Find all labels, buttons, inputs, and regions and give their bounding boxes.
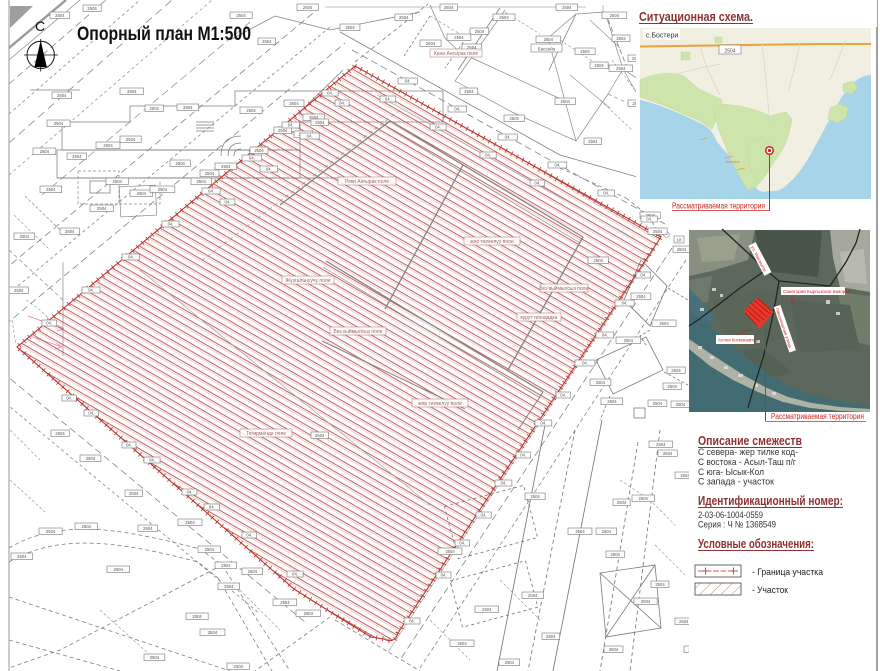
svg-text:2504: 2504 (611, 552, 621, 557)
svg-text:2504: 2504 (72, 154, 82, 159)
svg-text:2504: 2504 (659, 321, 669, 326)
svg-text:2504: 2504 (594, 258, 604, 263)
svg-text:2504: 2504 (57, 93, 67, 98)
svg-text:курут площадка: курут площадка (521, 315, 558, 321)
svg-text:2504: 2504 (236, 13, 246, 18)
svg-text:04.: 04. (534, 180, 540, 185)
svg-text:04.: 04. (409, 618, 415, 623)
svg-text:2504: 2504 (617, 500, 627, 505)
svg-text:Ситуационная схема.: Ситуационная схема. (639, 10, 753, 24)
svg-text:2504: 2504 (315, 120, 325, 125)
svg-text:04.: 04. (66, 395, 72, 400)
svg-text:2504: 2504 (464, 89, 474, 94)
svg-text:2504: 2504 (399, 15, 409, 20)
svg-text:04.: 04. (554, 162, 560, 167)
svg-text:2504: 2504 (14, 288, 24, 293)
svg-text:04.: 04. (126, 442, 132, 447)
svg-text:04.: 04. (168, 221, 174, 226)
svg-text:2504: 2504 (143, 526, 153, 531)
svg-text:2504: 2504 (499, 15, 509, 20)
svg-text:2504: 2504 (87, 6, 97, 11)
svg-text:04.: 04. (327, 90, 333, 95)
svg-text:Аллея Космонавтов: Аллея Космонавтов (718, 338, 758, 343)
svg-text:04.: 04. (435, 124, 441, 129)
svg-text:2504: 2504 (150, 655, 160, 660)
svg-text:04.: 04. (209, 504, 215, 509)
svg-text:04.: 04. (603, 190, 609, 195)
svg-text:2504: 2504 (546, 634, 556, 639)
svg-text:04.: 04. (505, 134, 511, 139)
svg-text:2504: 2504 (656, 442, 666, 447)
svg-text:04.: 04. (501, 480, 507, 485)
svg-text:2504: 2504 (20, 234, 30, 239)
svg-text:2504: 2504 (246, 108, 256, 113)
svg-text:04.: 04. (441, 572, 447, 577)
svg-text:2504: 2504 (205, 547, 215, 552)
svg-text:2504: 2504 (671, 368, 681, 373)
svg-text:2504: 2504 (562, 5, 572, 10)
svg-text:2504: 2504 (97, 206, 107, 211)
svg-text:2504: 2504 (113, 179, 123, 184)
svg-text:2504: 2504 (676, 402, 686, 407)
svg-text:2504: 2504 (575, 529, 585, 534)
svg-text:2504: 2504 (624, 338, 634, 343)
svg-text:Тегирменди поле: Тегирменди поле (246, 431, 286, 437)
svg-text:2504: 2504 (197, 179, 207, 184)
svg-text:2504: 2504 (445, 549, 455, 554)
svg-text:04.: 04. (602, 332, 608, 337)
svg-text:04.: 04. (128, 254, 134, 259)
svg-text:2504: 2504 (304, 611, 314, 616)
svg-text:04.: 04. (46, 320, 52, 325)
svg-text:2504: 2504 (40, 149, 50, 154)
svg-text:04.: 04. (249, 155, 255, 160)
svg-text:2504: 2504 (426, 41, 436, 46)
svg-text:2504: 2504 (444, 5, 454, 10)
svg-text:2504: 2504 (544, 37, 554, 42)
svg-text:Серия : Ч № 1368549: Серия : Ч № 1368549 (698, 520, 776, 531)
svg-text:18: 18 (676, 237, 682, 242)
svg-text:04.: 04. (224, 199, 230, 204)
svg-text:2504: 2504 (46, 529, 56, 534)
svg-text:2504: 2504 (280, 600, 290, 605)
svg-text:Рассматриваемая территория: Рассматриваемая территория (672, 202, 765, 211)
svg-text:2504: 2504 (510, 116, 520, 121)
svg-text:2504: 2504 (655, 582, 665, 587)
svg-text:2504: 2504 (221, 563, 231, 568)
svg-text:04.: 04. (622, 300, 628, 305)
svg-text:2504: 2504 (205, 171, 215, 176)
svg-text:04.: 04. (481, 512, 487, 517)
svg-text:2504: 2504 (345, 25, 355, 30)
svg-text:2504: 2504 (46, 187, 56, 192)
svg-text:04.: 04. (640, 272, 646, 277)
svg-text:2504: 2504 (475, 29, 485, 34)
svg-text:04.: 04. (246, 532, 252, 537)
svg-text:04.: 04. (187, 489, 193, 494)
svg-text:2504: 2504 (528, 593, 538, 598)
svg-text:Бассейн: Бассейн (538, 45, 556, 51)
svg-text:Описание смежеств: Описание смежеств (698, 434, 802, 448)
svg-text:2504: 2504 (65, 229, 75, 234)
svg-text:2504: 2504 (663, 451, 673, 456)
svg-text:2504: 2504 (289, 101, 299, 106)
svg-text:04.: 04. (646, 216, 652, 221)
svg-text:2504: 2504 (158, 187, 168, 192)
svg-text:2504: 2504 (55, 431, 65, 436)
svg-text:2504: 2504 (126, 137, 136, 142)
svg-text:04.: 04. (520, 452, 526, 457)
svg-text:2504: 2504 (530, 494, 540, 499)
svg-text:2504: 2504 (86, 456, 96, 461)
svg-text:Санаторий Кыргызское взморье: Санаторий Кыргызское взморье (783, 288, 851, 294)
svg-text:2504: 2504 (248, 569, 258, 574)
svg-text:Условные обозначения:: Условные обозначения: (698, 537, 814, 551)
svg-text:2504: 2504 (303, 5, 313, 10)
svg-text:2504: 2504 (588, 139, 598, 144)
svg-text:2504: 2504 (679, 619, 689, 624)
svg-text:2504: 2504 (561, 99, 571, 104)
svg-text:Без кыймылсыз поле: Без кыймылсыз поле (333, 328, 382, 335)
svg-text:2504: 2504 (221, 164, 231, 169)
svg-text:2504: 2504 (234, 664, 244, 669)
svg-text:04.: 04. (149, 457, 155, 462)
svg-text:2504: 2504 (610, 13, 620, 18)
svg-text:04.: 04. (266, 166, 272, 171)
svg-text:04.: 04. (385, 96, 391, 101)
svg-text:2504: 2504 (653, 401, 663, 406)
svg-text:04.: 04. (88, 287, 94, 292)
svg-text:2504: 2504 (680, 473, 690, 478)
svg-text:04.: 04. (560, 392, 566, 397)
svg-text:2504: 2504 (185, 520, 195, 525)
svg-text:С: С (35, 18, 45, 34)
svg-text:2504: 2504 (129, 491, 139, 496)
svg-text:04.: 04. (208, 188, 214, 193)
svg-text:04.: 04. (339, 100, 345, 105)
svg-text:- Граница участка: - Граница участка (752, 567, 824, 578)
svg-text:2504: 2504 (454, 35, 464, 40)
svg-text:2504: 2504 (457, 641, 467, 646)
svg-text:без кыймылсыз поле: без кыймылсыз поле (540, 285, 589, 292)
svg-text:2504: 2504 (176, 161, 186, 166)
svg-text:2504: 2504 (616, 66, 626, 71)
svg-text:2504: 2504 (724, 48, 735, 54)
svg-text:2504: 2504 (505, 660, 515, 665)
svg-text:04.: 04. (454, 106, 460, 111)
svg-text:04.: 04. (582, 360, 588, 365)
svg-text:2504: 2504 (137, 191, 147, 196)
svg-text:2504: 2504 (639, 496, 649, 501)
svg-text:2504: 2504 (636, 294, 646, 299)
svg-text:2504: 2504 (641, 599, 651, 604)
svg-text:04.: 04. (88, 410, 94, 415)
svg-text:04.: 04. (459, 540, 465, 545)
svg-text:с.Бостери: с.Бостери (646, 33, 678, 40)
svg-text:2504: 2504 (17, 554, 27, 559)
svg-text:04.: 04. (485, 152, 491, 157)
svg-text:2504: 2504 (224, 584, 234, 589)
svg-text:жер тилкелуу поле: жер тилкелуу поле (418, 401, 462, 407)
svg-text:2504: 2504 (82, 524, 92, 529)
svg-text:2504: 2504 (580, 49, 590, 54)
svg-text:04.: 04. (292, 571, 298, 576)
svg-text:04.: 04. (288, 122, 294, 127)
svg-text:- Участок: - Участок (752, 585, 789, 596)
svg-text:2504: 2504 (262, 39, 272, 44)
svg-text:2504: 2504 (609, 647, 619, 652)
svg-text:2504: 2504 (54, 121, 64, 126)
svg-text:2504: 2504 (183, 105, 193, 110)
svg-text:Реки Ангырак поле: Реки Ангырак поле (345, 179, 389, 185)
svg-text:04.: 04. (540, 420, 546, 425)
svg-text:2504: 2504 (103, 143, 113, 148)
svg-text:2504: 2504 (278, 128, 288, 133)
svg-text:2504: 2504 (594, 63, 604, 68)
svg-text:Жузгалануучу поле: Жузгалануучу поле (286, 278, 331, 284)
svg-text:2504: 2504 (668, 384, 678, 389)
svg-text:жер тилкелуу поле: жер тилкелуу поле (470, 239, 514, 245)
svg-text:04.: 04. (405, 78, 411, 83)
svg-text:2504: 2504 (677, 247, 687, 252)
svg-text:2504: 2504 (653, 229, 663, 234)
svg-text:2504: 2504 (254, 148, 264, 153)
svg-text:2504: 2504 (192, 614, 202, 619)
svg-text:2504: 2504 (114, 567, 124, 572)
svg-text:Бостери: Бостери (726, 160, 739, 164)
svg-text:2504: 2504 (55, 13, 65, 18)
svg-text:Идентификационный номер:: Идентификационный номер: (698, 494, 843, 508)
svg-text:2504: 2504 (208, 630, 218, 635)
svg-text:2504: 2504 (315, 433, 325, 438)
svg-text:Опорный план М1:500: Опорный план М1:500 (77, 24, 251, 45)
svg-text:04.: 04. (307, 133, 313, 138)
svg-text:2504: 2504 (596, 380, 606, 385)
svg-text:Кени Ангырак поле: Кени Ангырак поле (434, 51, 479, 57)
svg-text:2504: 2504 (616, 36, 626, 41)
svg-text:2504: 2504 (607, 399, 617, 404)
svg-text:2504: 2504 (150, 106, 160, 111)
svg-text:Рассматриваемая территория: Рассматриваемая территория (771, 412, 864, 421)
svg-text:2504: 2504 (602, 529, 612, 534)
svg-text:2504: 2504 (127, 89, 137, 94)
svg-text:С запада - участок: С запада - участок (698, 477, 775, 488)
svg-text:2504: 2504 (482, 607, 492, 612)
